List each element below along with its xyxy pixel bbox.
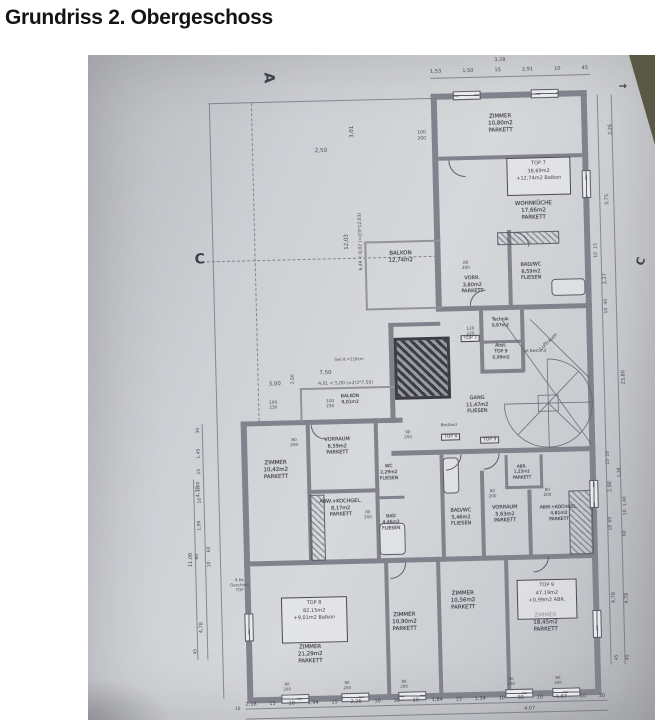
dimension-value: 1,67 [556, 694, 567, 700]
side-dimension: 15 [197, 469, 203, 475]
annotation: 3,01 [349, 126, 356, 138]
room-label: BAD/WC6,59m2FLIESEN [520, 261, 541, 281]
side-dimension: 60 [623, 530, 629, 536]
room-floor: 0,99m2 [492, 355, 509, 361]
room-label: BALKON12,74m2 [388, 250, 413, 265]
door-arc [533, 556, 549, 572]
room-label: GANG11,47m2FLIESEN [466, 395, 489, 415]
room-floor: FLIESEN [382, 526, 400, 532]
unit-box: TOP 738,69m2+12,74m2 Balkon [506, 156, 571, 196]
room-name: GANG [466, 395, 489, 402]
door-arc [483, 453, 499, 469]
annotation: 7,50 [319, 370, 331, 377]
wall [388, 322, 440, 327]
window [592, 610, 602, 638]
screenshot: Grundriss 2. Obergeschoss [0, 0, 655, 720]
room-label: ZIMMER10,90m2PARKETT [392, 612, 417, 634]
side-dimension: 10 [604, 308, 610, 314]
corner-arrow-icon: → [618, 81, 627, 92]
side-dimension: 3,75 [604, 194, 611, 205]
dimension-value: 1,53 [430, 69, 441, 75]
unit-box-line: +12,74m2 Balkon [510, 175, 568, 184]
wall [480, 471, 486, 558]
dimension-value: 15 [494, 67, 501, 73]
side-dimension: 60 [608, 517, 614, 523]
dimension-value: 15 [269, 701, 276, 707]
room-label: WC2,29m2FLIESEN [380, 464, 399, 482]
balcony-railing [300, 388, 303, 422]
dimension-value: 15 [331, 699, 338, 705]
door-arc [445, 454, 461, 470]
boundary-line [209, 103, 225, 699]
side-dimension: 4,78 [198, 622, 205, 633]
annotation: 4,07 [524, 705, 535, 712]
unit-box-line: +9,01m2 Balkon [284, 614, 344, 623]
side-dimension: 1,40 [623, 496, 629, 506]
dimension-value: 45 [582, 65, 589, 71]
balcony-railing [364, 241, 368, 310]
room-floor: PARKETT [492, 517, 518, 524]
wall [539, 454, 543, 488]
side-dimension: 45 [615, 655, 621, 661]
side-dimension: 15 [594, 243, 600, 249]
room-name: VORRAUM [492, 504, 518, 511]
top-dimension-chain: 1,531,50152,911045 [430, 65, 588, 75]
dimension-value: 10 [499, 695, 506, 701]
dimension-value: 1,34 [475, 696, 486, 702]
balcony-railing [364, 240, 440, 244]
annotation: 80 200 [290, 437, 298, 448]
dimension-value: 2,91 [522, 66, 533, 72]
annotation: 80 200 [543, 487, 551, 498]
wall [504, 555, 511, 695]
window [531, 89, 559, 99]
dimension-value: 10 [374, 698, 381, 704]
room-label: BAD4,46m2FLIESEN [382, 514, 401, 532]
section-marker-c-left: C [194, 251, 205, 267]
side-dimension: 10 [606, 451, 612, 457]
dimension-value: 2,18 [245, 701, 256, 707]
room-label: ZIMMER21,29m2PARKETT [298, 644, 323, 666]
wall [307, 488, 379, 494]
room-label: VORR.3,80m2PARKETT [461, 275, 484, 295]
room-label: ZIMMER10,56m2PARKETT [450, 590, 475, 612]
dim-line [193, 480, 198, 660]
dim-line [430, 74, 590, 79]
room-floor: PARKETT [451, 604, 476, 612]
side-dimension: 10 [608, 525, 614, 531]
side-dimension: 2,27 [602, 273, 609, 284]
section-marker-c-right: C [633, 255, 648, 267]
side-dimension: 45 [193, 649, 199, 655]
side-dimension: 1,00 [196, 482, 202, 492]
room-floor: PARKETT [320, 511, 363, 519]
unit-box-line: +0,99m2 ABR. [520, 597, 574, 606]
dimension-value: 2,26 [350, 699, 361, 705]
annotation: 100 230 [326, 398, 334, 409]
side-dimension: 1,98 [197, 521, 203, 531]
annotation: 3,00 [269, 381, 281, 388]
room-name: VORRAUM [324, 436, 350, 443]
window [244, 613, 254, 641]
dimension-value: 10 [537, 694, 544, 700]
annotation: 80 200 [488, 488, 496, 499]
unit-door-label: TOP 8 [441, 433, 460, 441]
side-dimension: 10 [623, 509, 629, 515]
side-dimension: 10 [594, 252, 600, 258]
side-dimension: 10 [207, 561, 213, 567]
room-floor: PARKETT [461, 288, 483, 295]
room-label: WOHNKÜCHE17,66m2PARKETT [515, 200, 552, 222]
wall [436, 557, 443, 697]
dimension-value: 10 [554, 66, 561, 72]
room-floor: FLIESEN [521, 274, 542, 281]
annotation: 10 [235, 707, 241, 713]
room-floor: PARKETT [540, 516, 578, 523]
dimension-value: 1,94 [308, 700, 319, 706]
door-arc [390, 563, 406, 579]
room-floor: PARKETT [298, 658, 323, 666]
room-floor: PARKETT [513, 474, 532, 480]
dim-line [597, 95, 612, 665]
unit-door-label: TOP 9 [480, 436, 499, 444]
annotation: 3,28 [494, 57, 505, 64]
annotation: Bestand [440, 422, 457, 427]
annotation: 12,03 [344, 234, 351, 250]
annotation: 80 200 [364, 509, 372, 520]
side-dimension: 1,38 [617, 467, 623, 477]
window [589, 480, 599, 508]
annotation: 80 200 [343, 680, 351, 690]
boundary-line [209, 98, 433, 104]
balcony-railing [366, 307, 442, 311]
side-dimension: 10 [198, 498, 204, 504]
side-dimension: 11,06 [188, 553, 195, 567]
side-dimension: 45 [626, 654, 632, 660]
room-floor: PARKETT [325, 449, 351, 456]
property-dash-line [251, 103, 260, 421]
side-dimension: 40 [604, 299, 610, 305]
spiral-staircase [500, 316, 595, 450]
room-floor: FLIESEN [451, 520, 472, 527]
room-floor: FLIESEN [466, 408, 489, 415]
page-title: Grundriss 2. Obergeschoss [5, 6, 273, 30]
room-label: Technik0,97m2 [491, 317, 509, 329]
dimension-value: 1,50 [462, 68, 473, 74]
room-area: 0,97m2 [492, 323, 509, 329]
wall [436, 303, 592, 312]
annotation: 100 230 [269, 399, 277, 410]
annotation: alt Bestand [523, 348, 546, 354]
room-label: ABW.+KOCHGEL.4,81m2PARKETT [540, 505, 579, 523]
room-name: ABW.+KOCHGEL. [319, 498, 362, 506]
unit-box: TOP 947,19m2+0,99m2 ABR. [517, 578, 578, 619]
room-name: BAD/WC [450, 507, 471, 514]
dimension-value: 15 [456, 696, 463, 702]
annotation: 2,50 [315, 148, 327, 155]
photo-shadow [88, 660, 208, 720]
room-floor: PARKETT [515, 215, 552, 223]
annotation: 6,49 < 8,02 (=2/3*12,03) [358, 213, 365, 271]
plan: A C C → 1,531,50152,911045 2,1815101,941… [88, 55, 655, 720]
side-dimension: 60 [207, 546, 213, 552]
annotation: lt.Nr. Geschoss TOP [230, 577, 249, 592]
annotation: 90 200 [404, 429, 412, 440]
room-floor: PARKETT [533, 626, 558, 634]
room-label: ABR.1,23m2PARKETT [512, 463, 531, 480]
dimension-value: 10 [288, 700, 295, 706]
door-arc [448, 160, 465, 177]
side-dimension: 1,45 [196, 449, 202, 459]
room-label: BALKON9,01m2 [341, 394, 360, 406]
dimension-value: 1,84 [432, 697, 443, 703]
room-name: BAD/WC [520, 261, 541, 268]
window [582, 170, 592, 198]
window [453, 91, 481, 101]
room-label: VORRAUM6,59m2PARKETT [324, 436, 350, 456]
side-dimension: 15 [606, 459, 612, 465]
wall [384, 558, 391, 698]
annotation: 100 200 [417, 130, 426, 141]
annotation: 80 200 [507, 676, 515, 686]
room-label: BAD/WC5,46m2FLIESEN [450, 507, 471, 527]
dimension-value: 30 [393, 698, 400, 704]
annotation: 80 200 [400, 679, 408, 689]
room-label: ABW.+KOCHGEL.8,17m2PARKETT [319, 498, 362, 519]
section-marker-a: A [261, 72, 277, 83]
side-dimension: 4,78 [611, 592, 618, 603]
annotation: 120 220 [466, 326, 474, 337]
dimension-value: 30 [599, 693, 606, 699]
room-area: 9,01m2 [341, 400, 359, 406]
floorplan-photo: A C C → 1,531,50152,911045 2,1815101,941… [88, 55, 655, 720]
annotation: Gel.H.=118cm [334, 356, 363, 362]
side-dimension: 2,98 [607, 481, 614, 492]
room-label: ZIMMER10,80m2PARKETT [488, 113, 513, 135]
unit-box: TOP 882,15m2+9,01m2 Balkon [281, 596, 348, 644]
wall [434, 239, 442, 309]
side-dimension: 4,78 [624, 593, 631, 604]
annotation: 80 200 [554, 675, 562, 685]
dimension-value: 10 [580, 693, 587, 699]
room-floor: PARKETT [488, 127, 513, 135]
room-label: VORRAUM5,63m2PARKETT [492, 504, 518, 524]
side-dimension: 60 [195, 554, 201, 560]
wall [505, 455, 509, 489]
room-floor: PARKETT [264, 474, 289, 482]
annotation: 2,50 [291, 374, 297, 384]
wall [431, 94, 441, 244]
side-dimension: 30 [196, 428, 202, 434]
room-area: 12,74m2 [388, 257, 413, 265]
room-label: Abst.TOP 90,99m2 [492, 343, 510, 361]
dim-line [246, 710, 608, 720]
annotation: 80 200 [462, 260, 470, 271]
room-floor: FLIESEN [380, 476, 398, 482]
wall [505, 485, 543, 489]
wall [527, 490, 533, 557]
side-dimension: 2,26 [607, 124, 614, 135]
room-floor: PARKETT [392, 626, 417, 634]
dimension-value: 10 [413, 697, 420, 703]
annotation: 80 200 [283, 681, 291, 691]
wall [375, 496, 404, 500]
room-label: ZIMMER10,42m2PARKETT [263, 460, 288, 482]
side-dimension: 23,80 [620, 370, 627, 384]
elevator-shaft [394, 336, 451, 399]
dimension-value: 89 [518, 695, 525, 701]
bathtub [551, 278, 585, 296]
room-name: VORR. [461, 275, 483, 282]
